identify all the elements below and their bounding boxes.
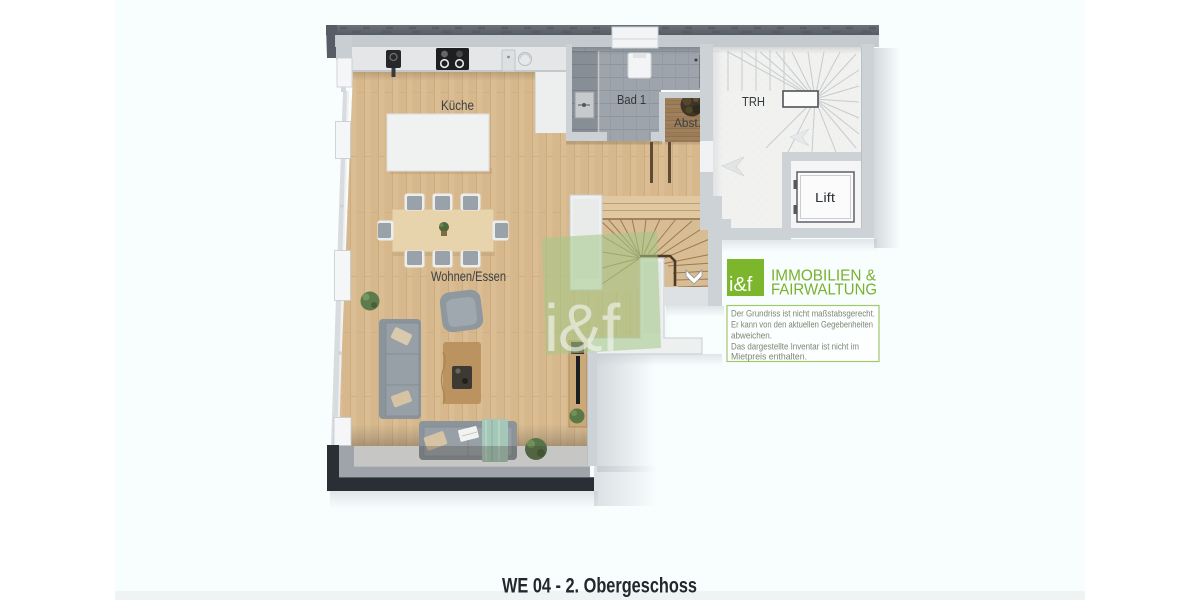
svg-text:TRH: TRH bbox=[742, 95, 765, 109]
svg-text:Das dargestellte Inventar ist: Das dargestellte Inventar ist nicht im bbox=[731, 342, 859, 352]
svg-text:Bad 1: Bad 1 bbox=[617, 92, 646, 107]
svg-text:FAIRWALTUNG: FAIRWALTUNG bbox=[771, 282, 877, 299]
svg-text:Mietpreis enthalten.: Mietpreis enthalten. bbox=[731, 352, 807, 362]
svg-text:Er kann von den aktuellen Gege: Er kann von den aktuellen Gegebenheiten bbox=[731, 320, 873, 330]
svg-text:Der Grundriss ist nicht maßsta: Der Grundriss ist nicht maßstabsgerecht. bbox=[731, 309, 875, 319]
svg-text:Wohnen/Essen: Wohnen/Essen bbox=[431, 269, 506, 284]
svg-text:Küche: Küche bbox=[441, 98, 474, 113]
svg-text:abweichen.: abweichen. bbox=[731, 331, 772, 341]
svg-text:i&f: i&f bbox=[729, 274, 753, 296]
svg-text:i&f: i&f bbox=[544, 291, 621, 366]
svg-text:WE 04 - 2. Obergeschoss: WE 04 - 2. Obergeschoss bbox=[502, 574, 697, 598]
svg-text:Lift: Lift bbox=[815, 190, 835, 205]
svg-text:Abst.: Abst. bbox=[674, 118, 701, 130]
